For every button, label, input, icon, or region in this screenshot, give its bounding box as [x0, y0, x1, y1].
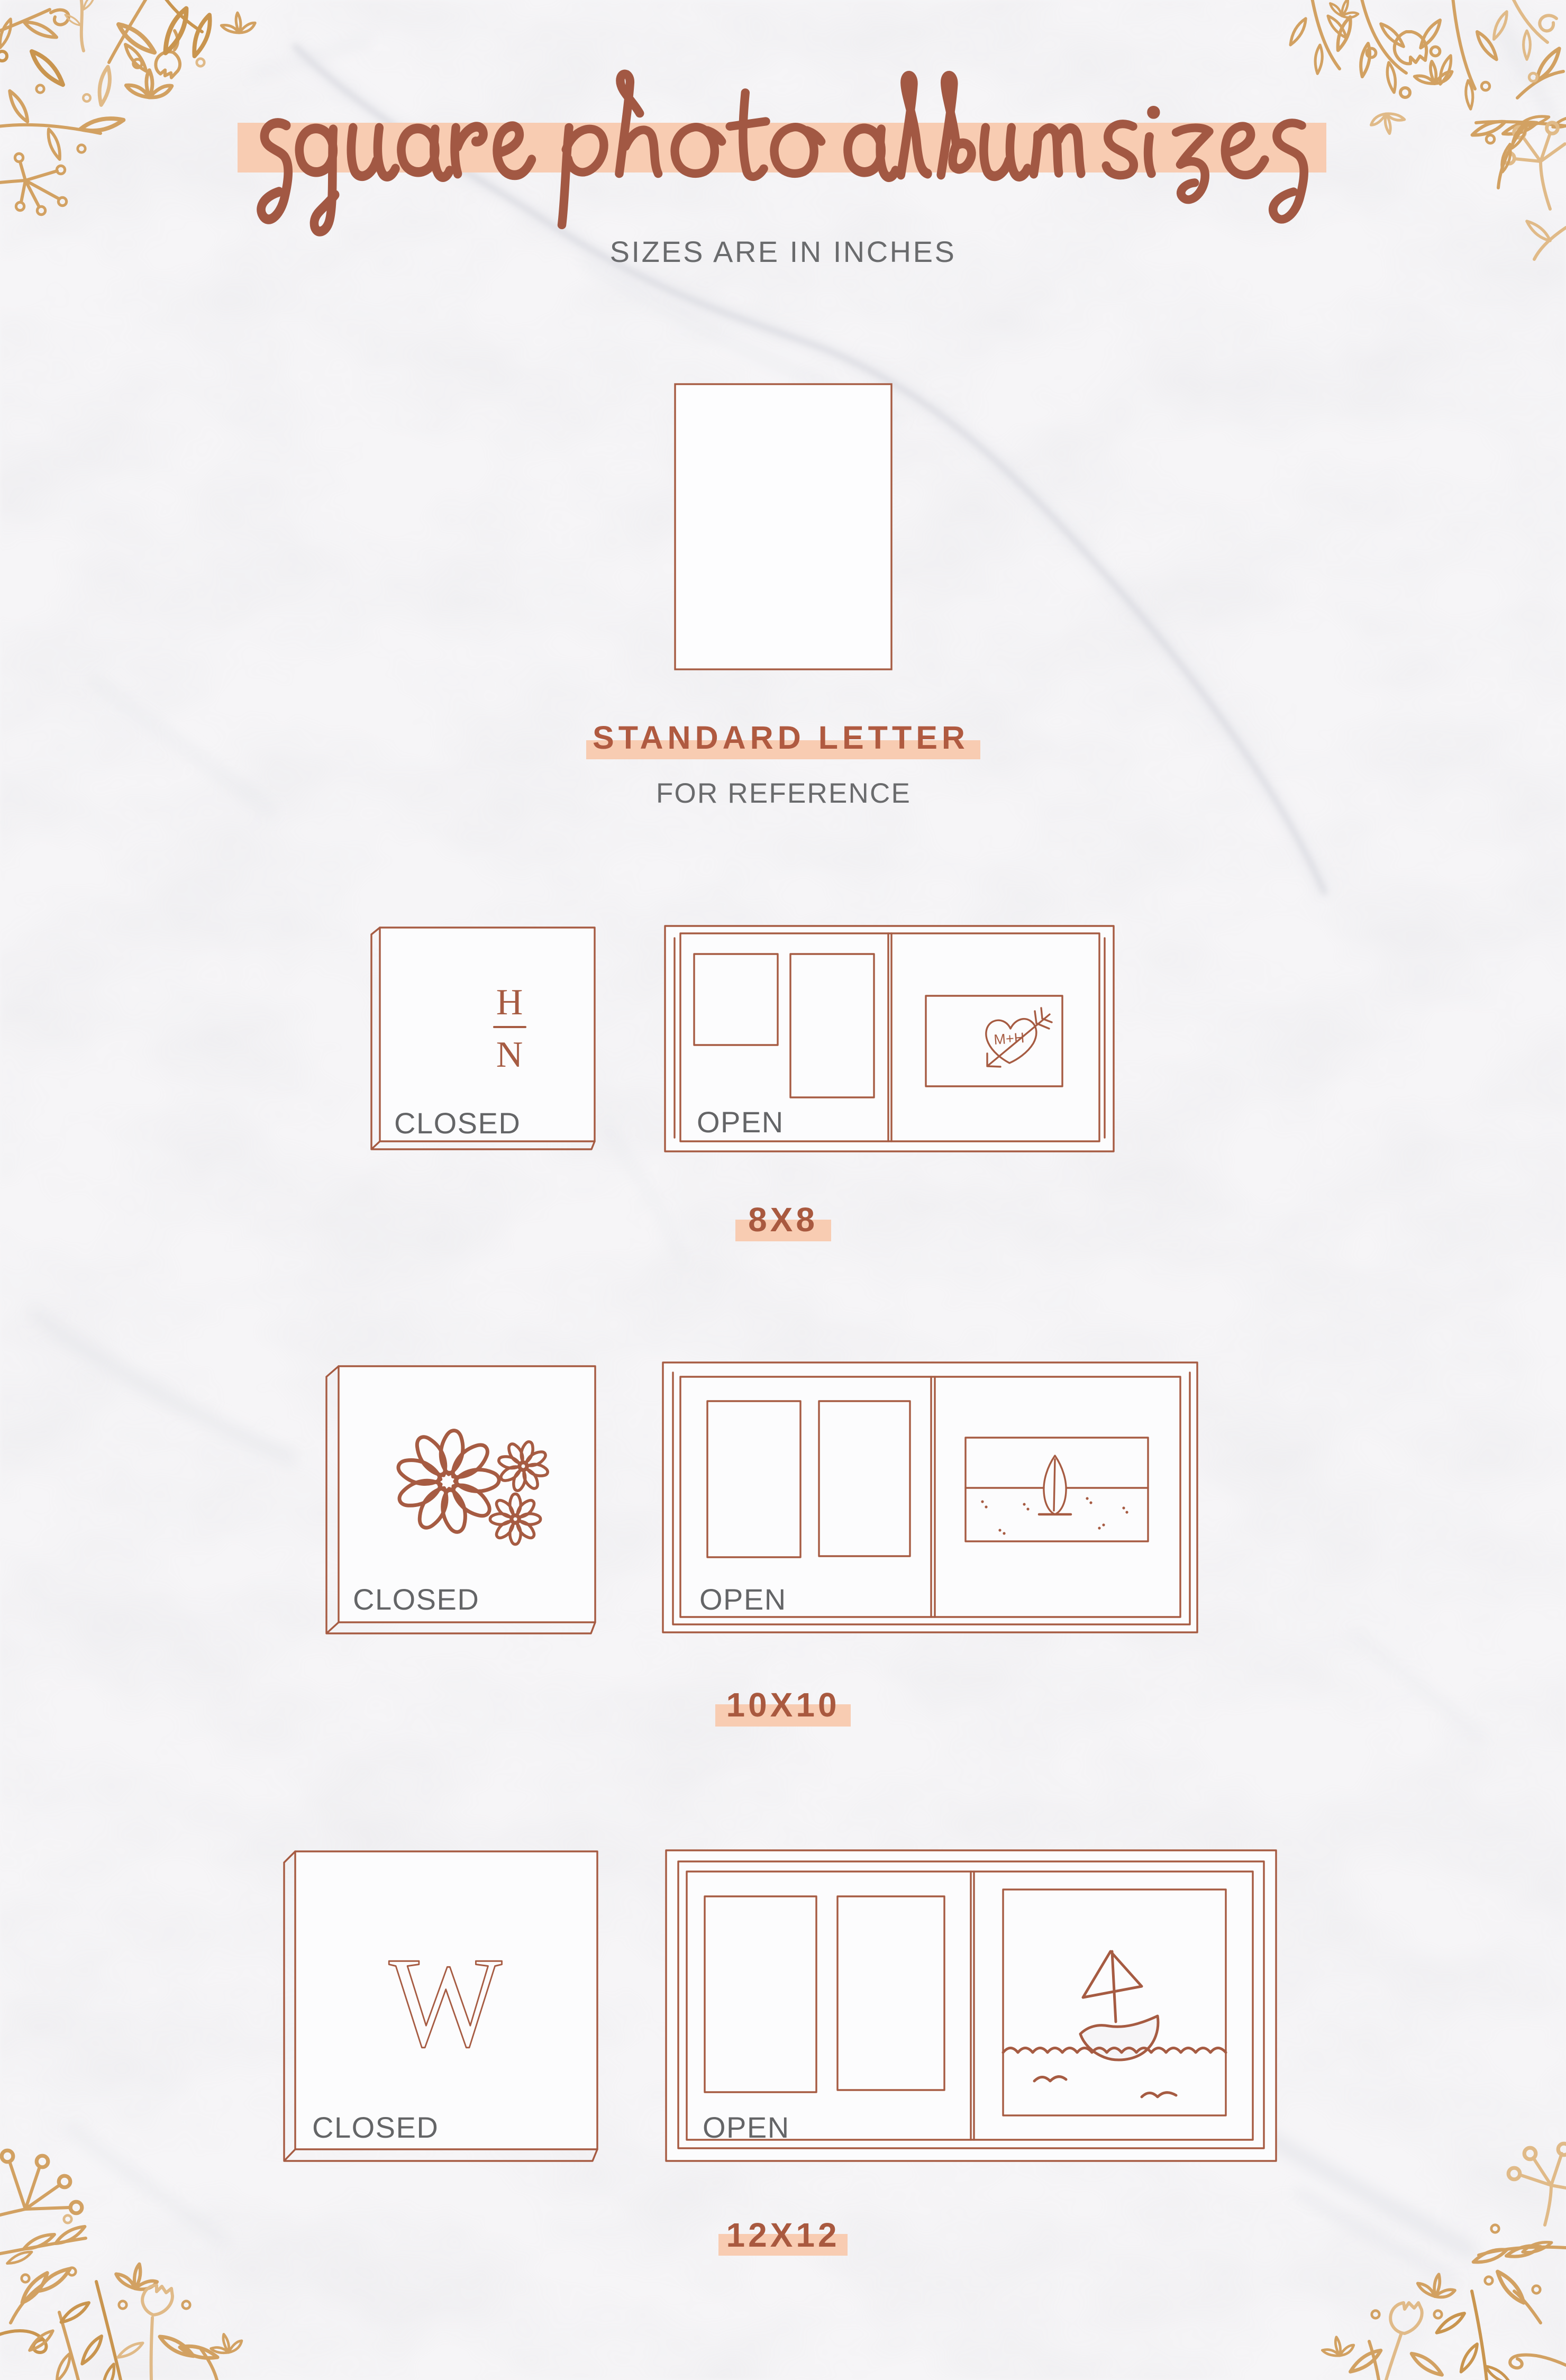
svg-text:CLOSED: CLOSED	[353, 1583, 479, 1616]
svg-text:12X12: 12X12	[726, 2216, 840, 2254]
svg-text:10X10: 10X10	[726, 1686, 840, 1724]
svg-text:FOR REFERENCE: FOR REFERENCE	[656, 778, 911, 809]
svg-text:CLOSED: CLOSED	[312, 2111, 439, 2144]
svg-text:OPEN: OPEN	[703, 2111, 790, 2144]
svg-text:CLOSED: CLOSED	[394, 1106, 521, 1140]
svg-text:8X8: 8X8	[748, 1201, 818, 1239]
svg-text:N: N	[496, 1034, 523, 1075]
svg-text:M+H: M+H	[994, 1030, 1025, 1048]
svg-text:W: W	[389, 1931, 502, 2074]
svg-text:OPEN: OPEN	[697, 1105, 784, 1139]
svg-text:STANDARD LETTER: STANDARD LETTER	[593, 720, 969, 756]
svg-text:OPEN: OPEN	[699, 1583, 787, 1616]
svg-text:SIZES ARE IN INCHES: SIZES ARE IN INCHES	[610, 235, 957, 268]
svg-text:H: H	[496, 982, 523, 1023]
